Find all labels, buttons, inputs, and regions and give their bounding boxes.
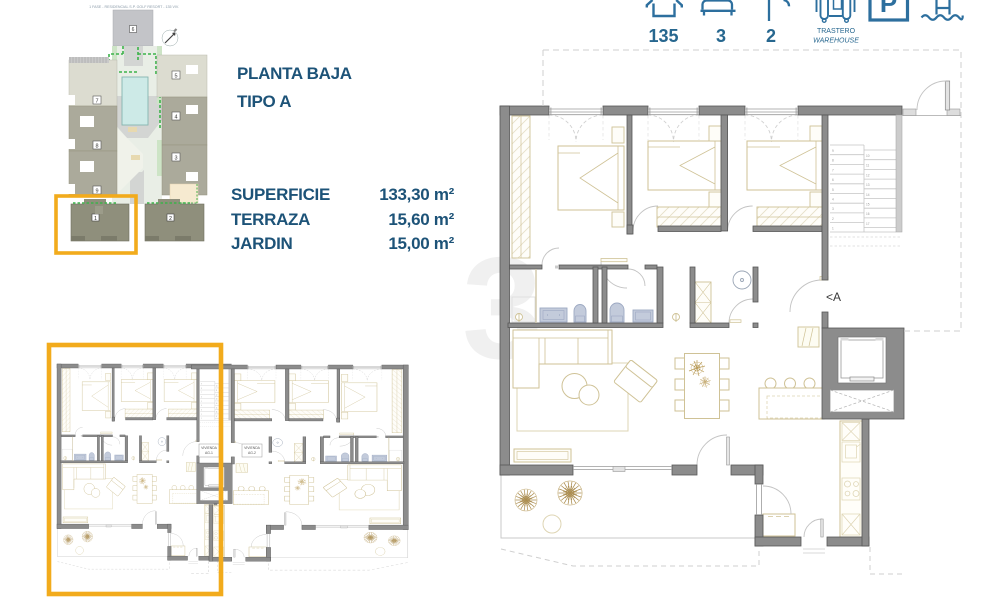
svg-text:135: 135 xyxy=(648,26,678,46)
svg-text:3: 3 xyxy=(716,26,726,46)
svg-text:AG-1: AG-1 xyxy=(205,451,213,455)
svg-text:2: 2 xyxy=(766,26,776,46)
svg-text:VIVIENDA: VIVIENDA xyxy=(244,446,261,450)
svg-text:6: 6 xyxy=(132,27,135,33)
svg-text:3: 3 xyxy=(174,156,177,162)
svg-text:2: 2 xyxy=(169,216,172,222)
svg-text:AG-2: AG-2 xyxy=(248,451,256,455)
svg-text:TERRAZA: TERRAZA xyxy=(231,210,310,229)
svg-text:133,30 m²: 133,30 m² xyxy=(379,185,454,204)
svg-text:9: 9 xyxy=(95,189,98,195)
svg-text:P: P xyxy=(880,0,897,18)
svg-text:SUPERFICIE: SUPERFICIE xyxy=(231,185,330,204)
svg-text:JARDIN: JARDIN xyxy=(231,234,293,253)
svg-text:15,60 m²: 15,60 m² xyxy=(388,210,454,229)
svg-text:15,00 m²: 15,00 m² xyxy=(388,234,454,253)
svg-text:TIPO A: TIPO A xyxy=(237,92,291,111)
svg-text:TRASTERO: TRASTERO xyxy=(817,28,856,35)
svg-text:5: 5 xyxy=(174,74,177,80)
svg-text:1 FASE - RESIDENCIAL S.P. GOLF: 1 FASE - RESIDENCIAL S.P. GOLF RESORT - … xyxy=(89,5,179,9)
svg-text:WAREHOUSE: WAREHOUSE xyxy=(813,38,859,45)
svg-text:VIVIENDA: VIVIENDA xyxy=(201,446,218,450)
svg-text:7: 7 xyxy=(95,99,98,105)
svg-text:PLANTA BAJA: PLANTA BAJA xyxy=(237,64,352,83)
svg-text:1: 1 xyxy=(94,216,97,222)
svg-text:4: 4 xyxy=(174,115,177,121)
svg-text:<A: <A xyxy=(826,290,841,304)
svg-text:8: 8 xyxy=(95,144,98,150)
